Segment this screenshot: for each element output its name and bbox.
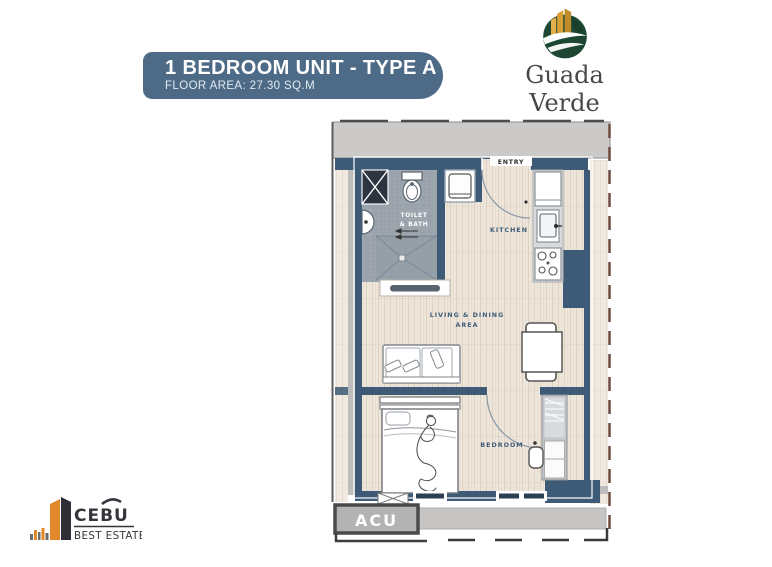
washer-icon bbox=[445, 170, 475, 202]
shaft bbox=[362, 170, 388, 204]
floor-area-subtitle: FLOOR AREA: 27.30 SQ.M bbox=[165, 80, 443, 92]
living-label-2: AREA bbox=[456, 322, 479, 329]
swoosh-icon bbox=[102, 499, 121, 504]
corridor bbox=[333, 122, 610, 158]
acu-label: ACU bbox=[355, 511, 398, 530]
kitchen-label: KITCHEN bbox=[490, 227, 528, 234]
acu-box: ACU bbox=[335, 505, 418, 533]
flyer-page: 1 BEDROOM UNIT - TYPE A FLOOR AREA: 27.3… bbox=[0, 0, 772, 567]
brand-logo-icon bbox=[537, 6, 593, 60]
stove-icon bbox=[535, 248, 561, 280]
vent-x-icon bbox=[378, 493, 408, 504]
brand-name: Guada Verde bbox=[492, 61, 637, 117]
fridge-icon bbox=[535, 172, 561, 206]
orange-building-icon bbox=[50, 499, 60, 540]
console-table bbox=[380, 280, 450, 296]
kitchen-sink-icon bbox=[537, 210, 562, 242]
entry-label: ENTRY bbox=[498, 159, 525, 166]
cebu-best-estate-logo: CEBU BEST ESTATE bbox=[30, 494, 142, 549]
dark-building-icon bbox=[61, 497, 71, 540]
living-label-1: LIVING & DINING bbox=[430, 312, 505, 319]
ledge-band bbox=[418, 508, 606, 529]
bed-icon bbox=[380, 397, 460, 493]
wardrobe-icon bbox=[542, 395, 567, 480]
stool-icon bbox=[529, 447, 543, 468]
skyline-icon bbox=[30, 528, 49, 540]
floor-plan: ENTRY bbox=[330, 114, 614, 550]
title-banner: 1 BEDROOM UNIT - TYPE A FLOOR AREA: 27.3… bbox=[143, 52, 443, 99]
sofa-icon bbox=[383, 345, 460, 383]
toilet-icon bbox=[402, 172, 422, 202]
toilet-label-2: & BATH bbox=[400, 221, 429, 228]
best-estate-label: BEST ESTATE bbox=[74, 530, 142, 542]
toilet-label-1: TOILET bbox=[400, 212, 427, 219]
bedroom-label: BEDROOM bbox=[480, 442, 523, 449]
cebu-label: CEBU bbox=[74, 506, 129, 526]
toilet-bath: TOILET & BATH bbox=[362, 170, 437, 282]
unit-title: 1 BEDROOM UNIT - TYPE A bbox=[165, 57, 443, 79]
cebu-logo-icon: CEBU BEST ESTATE bbox=[30, 494, 142, 544]
dining-set-icon bbox=[522, 323, 562, 381]
